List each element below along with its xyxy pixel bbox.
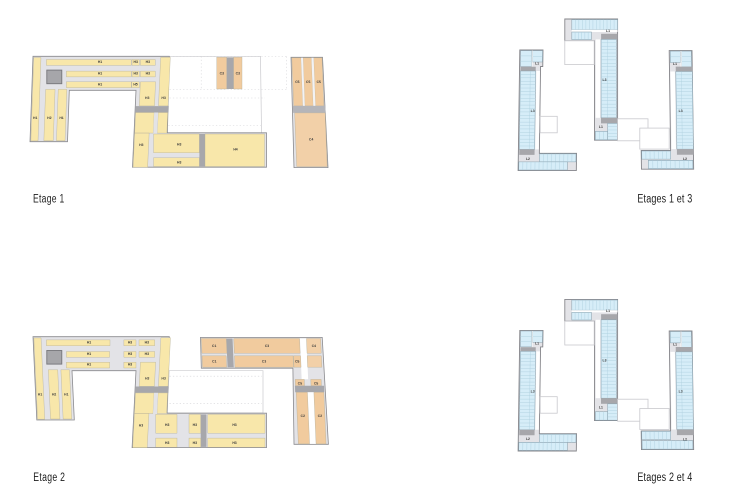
svg-text:H3: H3 [128,352,132,356]
svg-text:L1: L1 [599,125,603,129]
svg-text:L1: L1 [535,342,539,346]
svg-text:H4: H4 [233,147,237,151]
svg-text:H3: H3 [161,376,166,380]
svg-text:H3: H3 [145,96,150,100]
svg-text:C5: C5 [295,80,300,84]
svg-text:Etages 1 et 3: Etages 1 et 3 [637,193,692,205]
svg-text:H1: H1 [98,60,102,64]
svg-text:C5: C5 [306,80,311,84]
svg-text:C3: C3 [265,344,270,348]
svg-text:H1: H1 [98,72,102,76]
svg-text:C2: C2 [318,414,323,418]
svg-text:C3: C3 [236,72,240,76]
svg-text:C4: C4 [309,138,314,142]
svg-text:H3: H3 [145,341,149,345]
svg-text:H3: H3 [165,423,169,427]
svg-text:H3: H3 [145,352,149,356]
svg-text:H1: H1 [38,392,43,396]
svg-text:L1: L1 [673,343,677,347]
svg-text:H3: H3 [232,423,236,427]
svg-text:L1: L1 [599,406,603,410]
svg-text:Etage 2: Etage 2 [33,472,65,484]
svg-text:L1: L1 [606,309,610,313]
svg-text:L1: L1 [673,62,677,66]
svg-text:H1: H1 [87,341,91,345]
svg-text:H3: H3 [139,143,144,147]
svg-text:C4: C4 [312,344,317,348]
svg-text:L1: L1 [606,29,610,33]
svg-text:H1: H1 [98,82,102,86]
svg-text:L2: L2 [526,157,530,161]
svg-text:H1: H1 [87,352,91,356]
svg-text:H3: H3 [134,60,138,64]
svg-text:C5: C5 [314,381,319,385]
svg-text:C3: C3 [220,72,224,76]
svg-text:H3: H3 [139,423,144,427]
svg-text:H3: H3 [193,423,197,427]
svg-text:C3: C3 [262,360,267,364]
svg-text:L2: L2 [526,437,530,441]
svg-text:H1: H1 [87,363,91,367]
svg-text:H3: H3 [177,143,181,147]
svg-text:H3: H3 [193,441,197,445]
svg-text:H3: H3 [146,72,150,76]
svg-text:H1: H1 [64,392,69,396]
svg-text:L3: L3 [531,109,535,113]
svg-text:H5: H5 [133,82,137,86]
svg-text:C5: C5 [298,381,303,385]
svg-text:Etage 1: Etage 1 [33,193,65,205]
svg-text:H2: H2 [47,116,52,120]
svg-text:H3: H3 [146,60,150,64]
svg-text:C5: C5 [295,360,300,364]
svg-text:L1: L1 [535,61,539,65]
svg-text:H3: H3 [134,72,138,76]
svg-text:H3: H3 [161,96,166,100]
svg-text:H1: H1 [59,116,64,120]
svg-text:Etages 2 et 4: Etages 2 et 4 [637,472,692,484]
svg-text:H3: H3 [145,376,150,380]
svg-text:C1: C1 [212,344,217,348]
svg-text:H3: H3 [128,363,132,367]
svg-text:H3: H3 [232,441,236,445]
svg-text:L3: L3 [603,78,607,82]
svg-text:L3: L3 [679,389,683,393]
svg-text:C5: C5 [317,80,322,84]
svg-text:H2: H2 [52,392,57,396]
svg-text:C1: C1 [212,360,217,364]
svg-text:H3: H3 [177,161,181,165]
svg-text:L3: L3 [679,109,683,113]
svg-text:L3: L3 [603,358,607,362]
svg-text:H1: H1 [33,116,38,120]
svg-text:L3: L3 [531,389,535,393]
svg-text:C2: C2 [301,414,306,418]
svg-text:H3: H3 [128,341,132,345]
svg-text:H3: H3 [165,441,169,445]
